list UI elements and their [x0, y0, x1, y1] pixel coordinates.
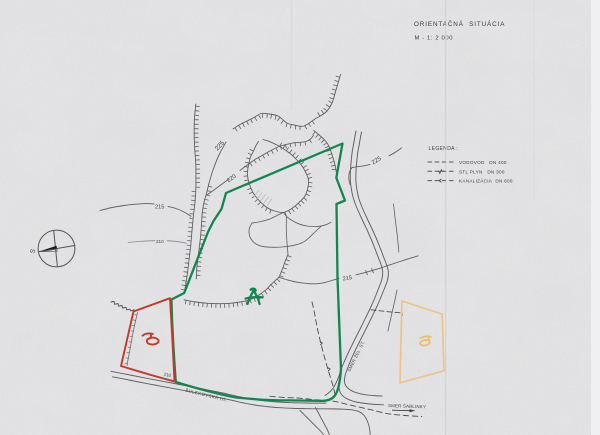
svg-text:VODOVOD DN 400: VODOVOD DN 400 [459, 160, 507, 165]
svg-text:215: 215 [155, 205, 164, 211]
svg-text:210: 210 [156, 239, 164, 244]
svg-text:M - 1: 2 000: M - 1: 2 000 [415, 36, 454, 42]
svg-text:STL PLYN DN 300: STL PLYN DN 300 [459, 169, 505, 174]
svg-text:ORIENTAČNÁ SITUÁCIA: ORIENTAČNÁ SITUÁCIA [414, 19, 505, 28]
svg-text:LEGENDA :: LEGENDA : [429, 146, 459, 152]
svg-text:KANALIZÁCIA DN 600: KANALIZÁCIA DN 600 [459, 178, 513, 184]
